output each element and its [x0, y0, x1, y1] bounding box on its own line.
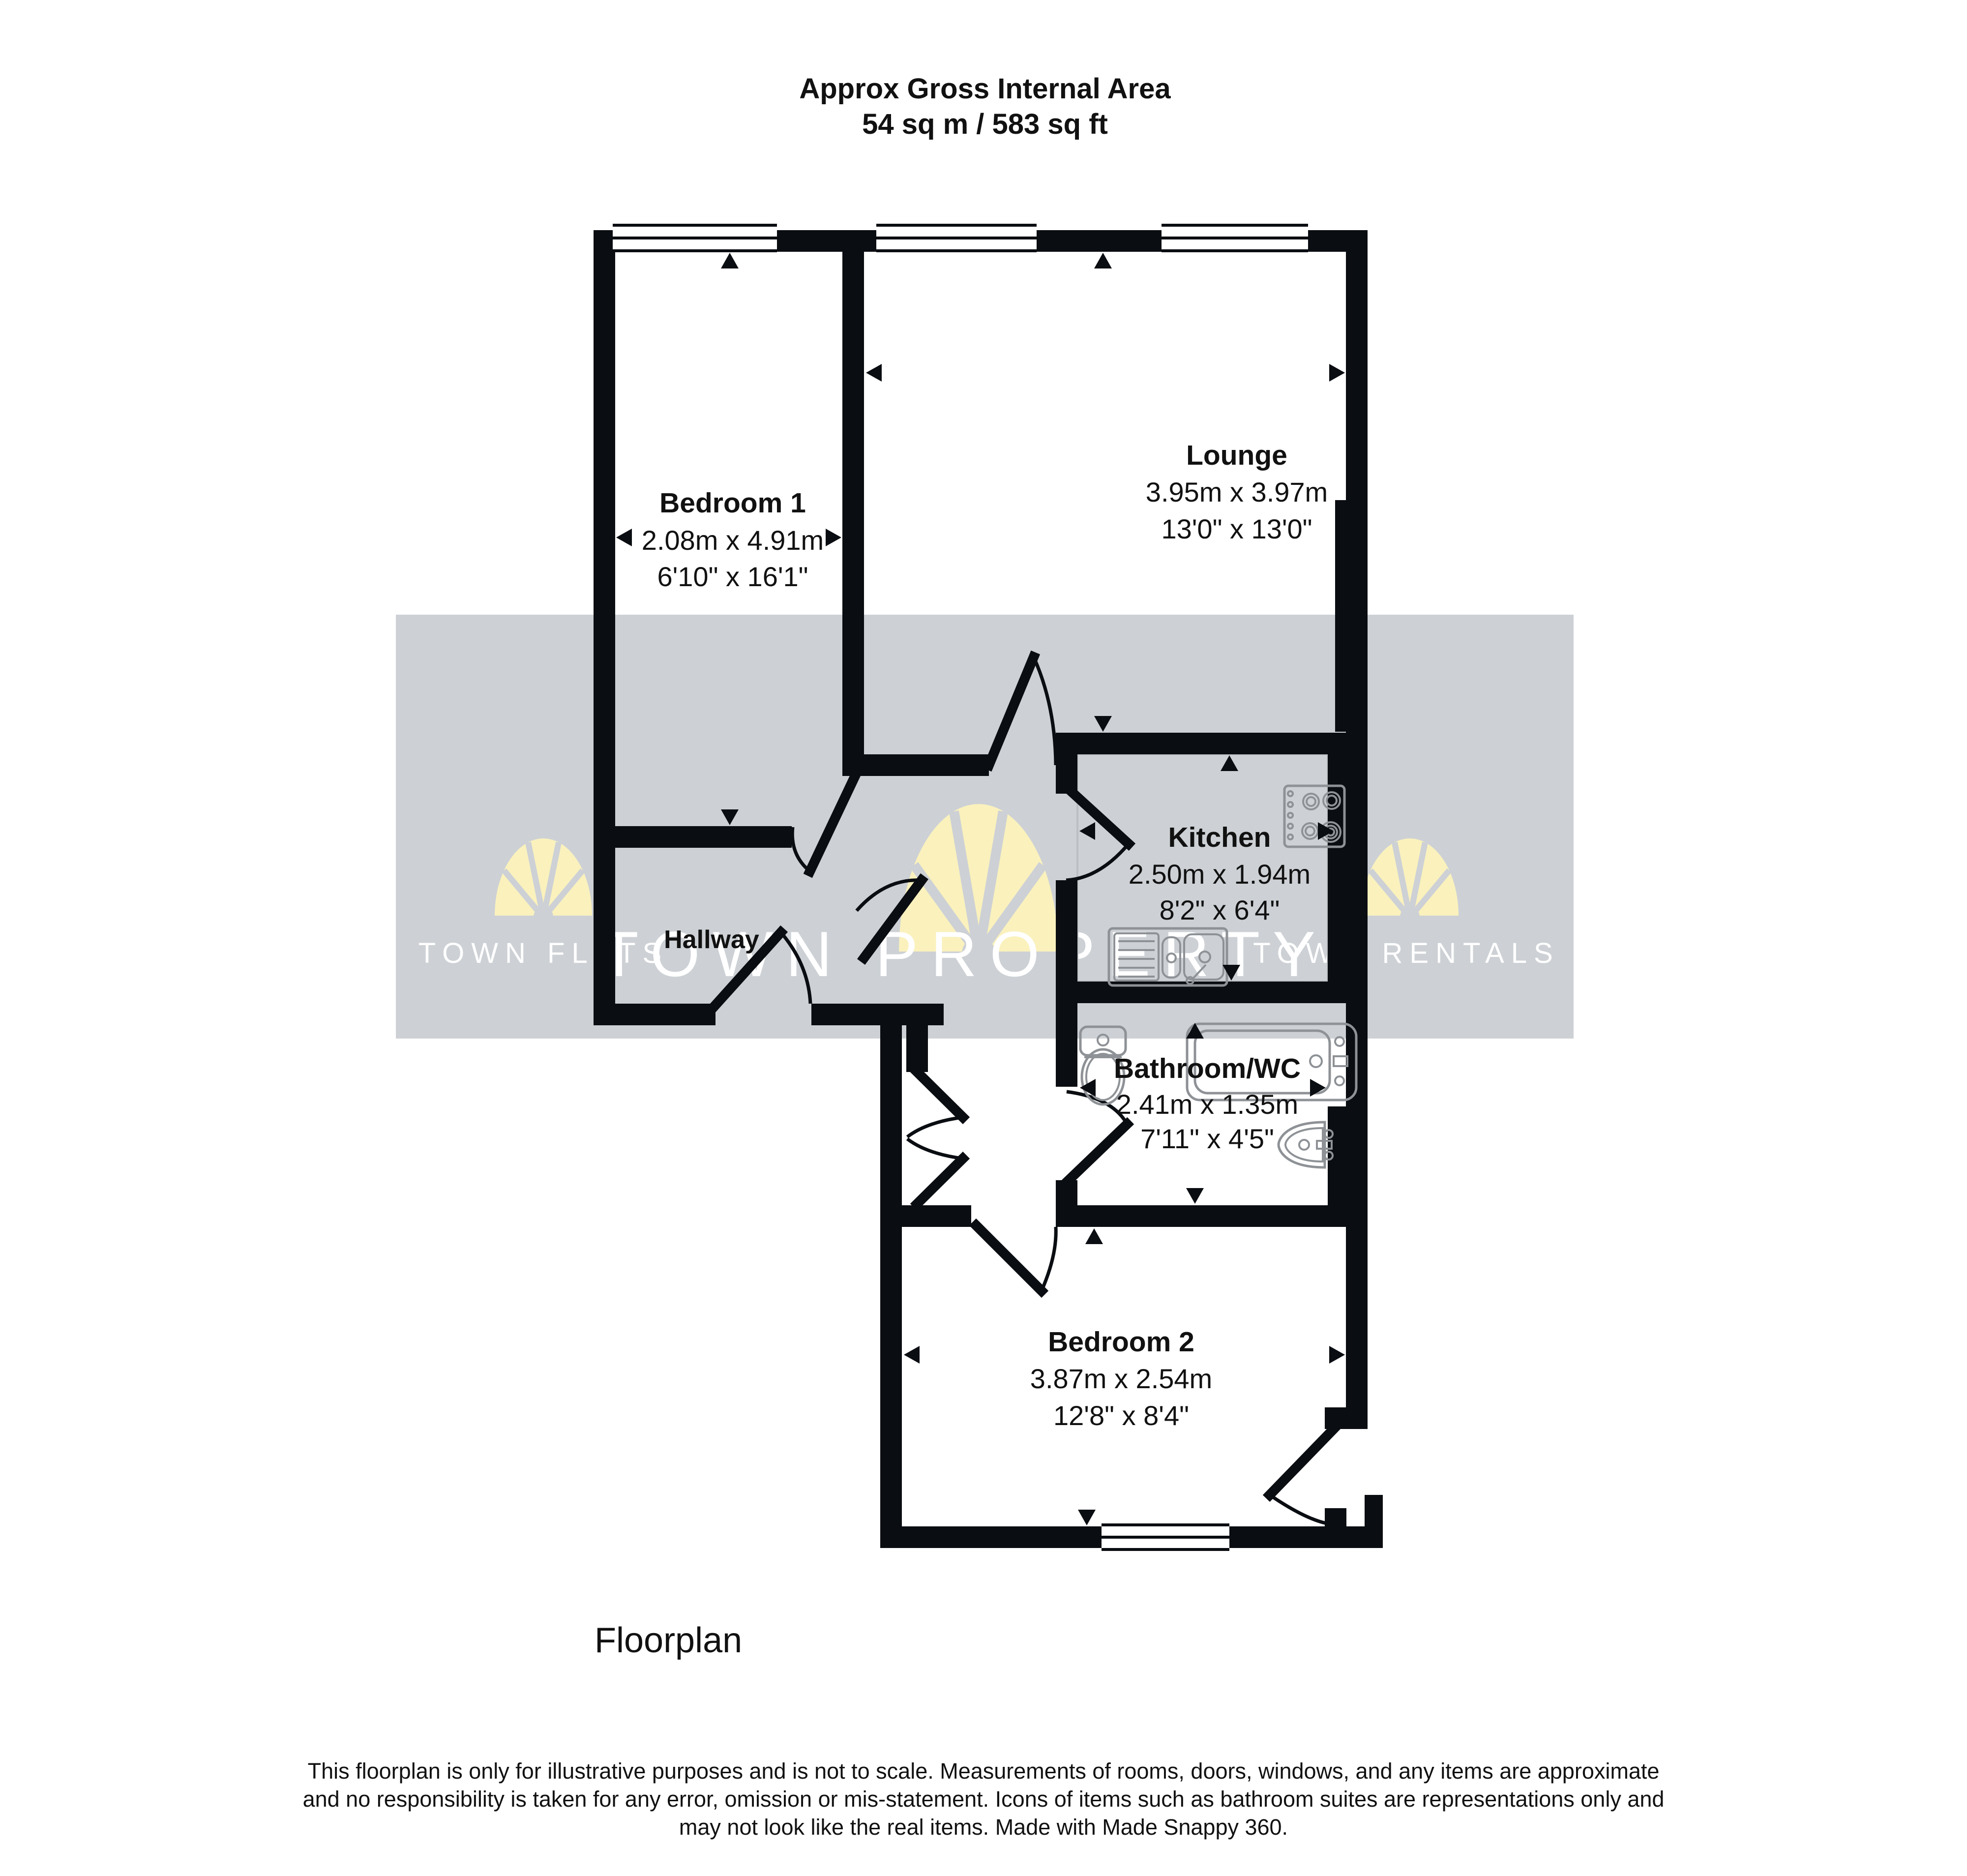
floorplan-canvas: TOWN FLATS TOWN PROPERTY TOWN RENTALS [0, 0, 1967, 1876]
disclaimer-line2: and no responsibility is taken for any e… [303, 1787, 1665, 1812]
svg-text:12'8" x 8'4": 12'8" x 8'4" [1053, 1400, 1189, 1431]
svg-text:Kitchen: Kitchen [1168, 822, 1271, 853]
arrow-left-lounge [866, 364, 882, 382]
arrow-down-bedroom2 [1078, 1510, 1096, 1525]
page-title-line1: Approx Gross Internal Area [799, 73, 1171, 105]
label-bathroom: Bathroom/WC 2.41m x 1.35m 7'11" x 4'5" [1114, 1053, 1301, 1154]
svg-text:2.50m x 1.94m: 2.50m x 1.94m [1129, 859, 1311, 890]
arrow-up-lounge [1094, 253, 1112, 268]
floorplan-caption: Floorplan [595, 1621, 742, 1660]
svg-text:2.08m x 4.91m: 2.08m x 4.91m [642, 525, 824, 556]
svg-text:7'11" x 4'5": 7'11" x 4'5" [1140, 1123, 1274, 1154]
svg-text:Bedroom 1: Bedroom 1 [659, 487, 806, 519]
label-hallway: Hallway [664, 925, 759, 954]
svg-text:13'0" x 13'0": 13'0" x 13'0" [1161, 513, 1312, 544]
arrow-left-bedroom2 [904, 1346, 920, 1364]
disclaimer-line1: This floorplan is only for illustrative … [308, 1758, 1660, 1784]
page-title-line2: 54 sq m / 583 sq ft [862, 108, 1108, 140]
label-bedroom1: Bedroom 1 2.08m x 4.91m 6'10" x 16'1" [642, 487, 824, 592]
arrow-up-bedroom1 [721, 253, 739, 268]
basin-icon [1279, 1122, 1333, 1167]
arrow-left-bedroom1 [616, 529, 632, 546]
disclaimer-line3: may not look like the real items. Made w… [679, 1815, 1288, 1840]
arrow-down-bathroom [1186, 1188, 1204, 1204]
svg-text:3.87m x 2.54m: 3.87m x 2.54m [1030, 1363, 1212, 1394]
svg-text:Bedroom 2: Bedroom 2 [1048, 1326, 1194, 1358]
svg-text:Bathroom/WC: Bathroom/WC [1114, 1053, 1301, 1084]
window-lounge-left [876, 224, 1037, 252]
corridor-doors [907, 1072, 963, 1204]
arrow-right-lounge [1329, 364, 1345, 382]
bedroom2-door [976, 1225, 1056, 1291]
svg-text:Lounge: Lounge [1186, 440, 1287, 471]
label-lounge: Lounge 3.95m x 3.97m 13'0" x 13'0" [1146, 440, 1328, 544]
svg-text:2.41m x 1.35m: 2.41m x 1.35m [1116, 1089, 1298, 1120]
svg-text:3.95m x 3.97m: 3.95m x 3.97m [1146, 476, 1328, 507]
window-lounge-right [1162, 224, 1308, 252]
arrow-right-bedroom2 [1329, 1346, 1345, 1364]
arrow-up-bedroom2 [1085, 1228, 1103, 1244]
svg-text:6'10" x 16'1": 6'10" x 16'1" [657, 561, 808, 592]
watermark-text-right: TOWN RENTALS [1253, 937, 1559, 969]
bedroom2-right-door [1270, 1429, 1334, 1523]
window-bedroom1 [613, 224, 777, 252]
arrow-right-bedroom1 [826, 529, 841, 546]
window-bedroom2 [1102, 1523, 1229, 1551]
label-bedroom2: Bedroom 2 3.87m x 2.54m 12'8" x 8'4" [1030, 1326, 1212, 1431]
disclaimer: This floorplan is only for illustrative … [303, 1758, 1665, 1840]
svg-text:8'2" x 6'4": 8'2" x 6'4" [1160, 894, 1280, 925]
